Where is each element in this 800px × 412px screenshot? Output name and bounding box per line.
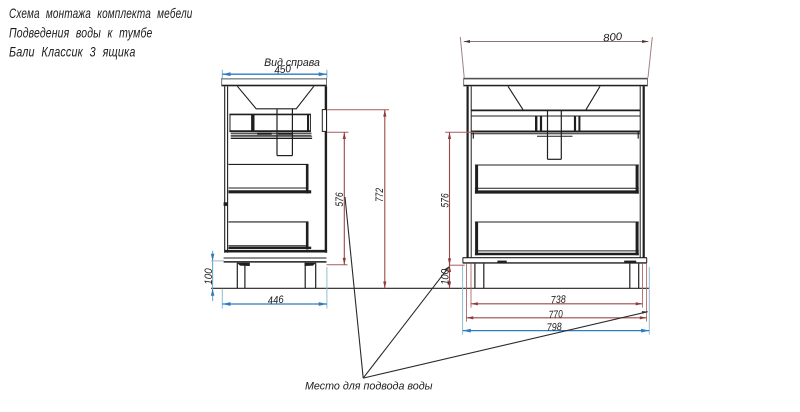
svg-text:446: 446	[267, 294, 284, 307]
svg-text:Место для подвода воды: Место для подвода воды	[305, 381, 433, 393]
svg-text:Бали Классик 3 ящика: Бали Классик 3 ящика	[9, 44, 136, 59]
svg-text:772: 772	[374, 188, 386, 202]
svg-text:Подведения воды к тумбе: Подведения воды к тумбе	[9, 25, 153, 40]
svg-text:Схема монтажа комплекта мебели: Схема монтажа комплекта мебели	[9, 6, 193, 21]
svg-text:576: 576	[334, 192, 346, 206]
svg-text:770: 770	[548, 308, 563, 321]
svg-text:Вид справа: Вид справа	[264, 57, 320, 69]
svg-text:100: 100	[203, 268, 215, 285]
svg-text:738: 738	[550, 293, 566, 306]
svg-text:800: 800	[603, 31, 623, 45]
svg-text:576: 576	[440, 193, 452, 207]
svg-text:450: 450	[273, 63, 291, 77]
